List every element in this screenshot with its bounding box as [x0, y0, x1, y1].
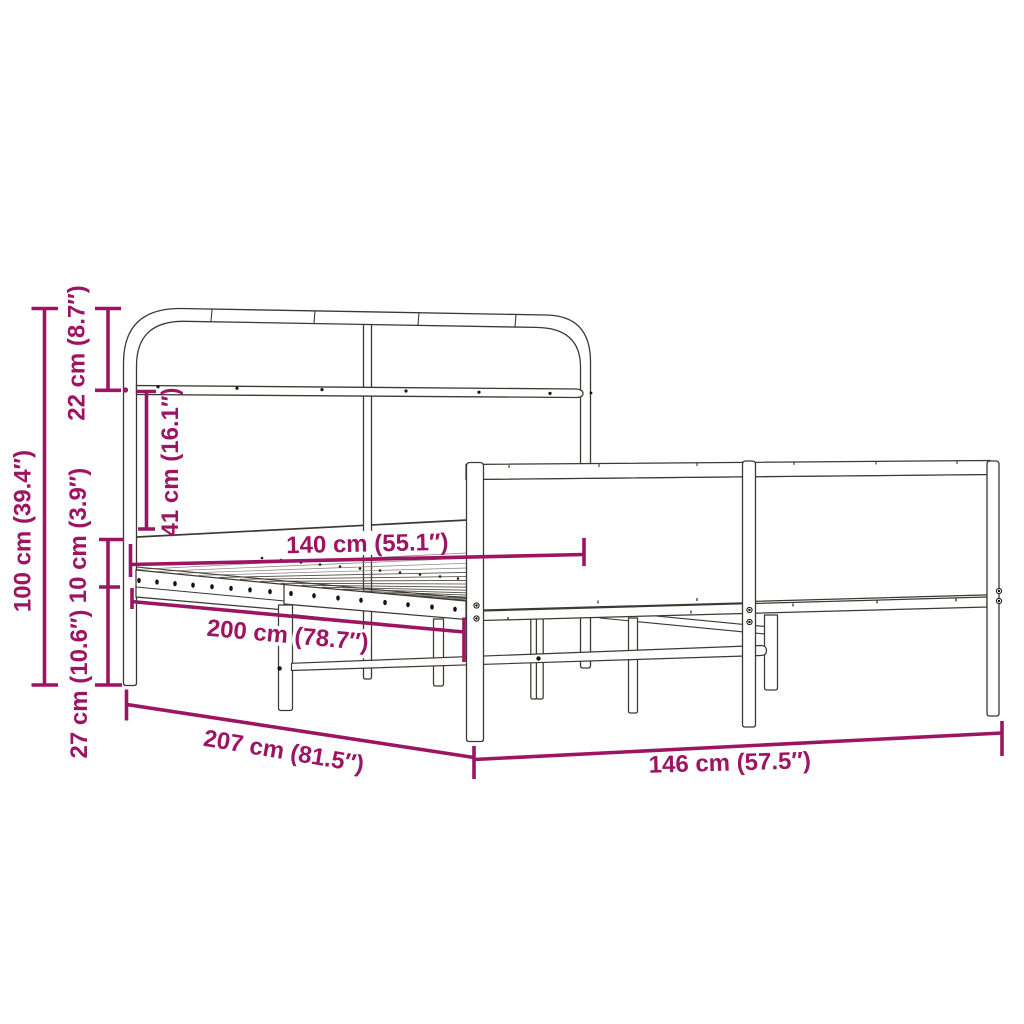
- svg-text:140 cm (55.1″): 140 cm (55.1″): [286, 529, 449, 559]
- svg-text:41 cm (16.1″): 41 cm (16.1″): [157, 388, 184, 537]
- svg-text:10 cm (3.9″): 10 cm (3.9″): [65, 468, 92, 604]
- svg-text:146 cm (57.5″): 146 cm (57.5″): [648, 747, 811, 779]
- svg-text:22 cm (8.7″): 22 cm (8.7″): [64, 285, 91, 421]
- svg-text:100 cm (39.4″): 100 cm (39.4″): [10, 450, 37, 612]
- svg-text:27 cm (10.6″): 27 cm (10.6″): [66, 610, 93, 759]
